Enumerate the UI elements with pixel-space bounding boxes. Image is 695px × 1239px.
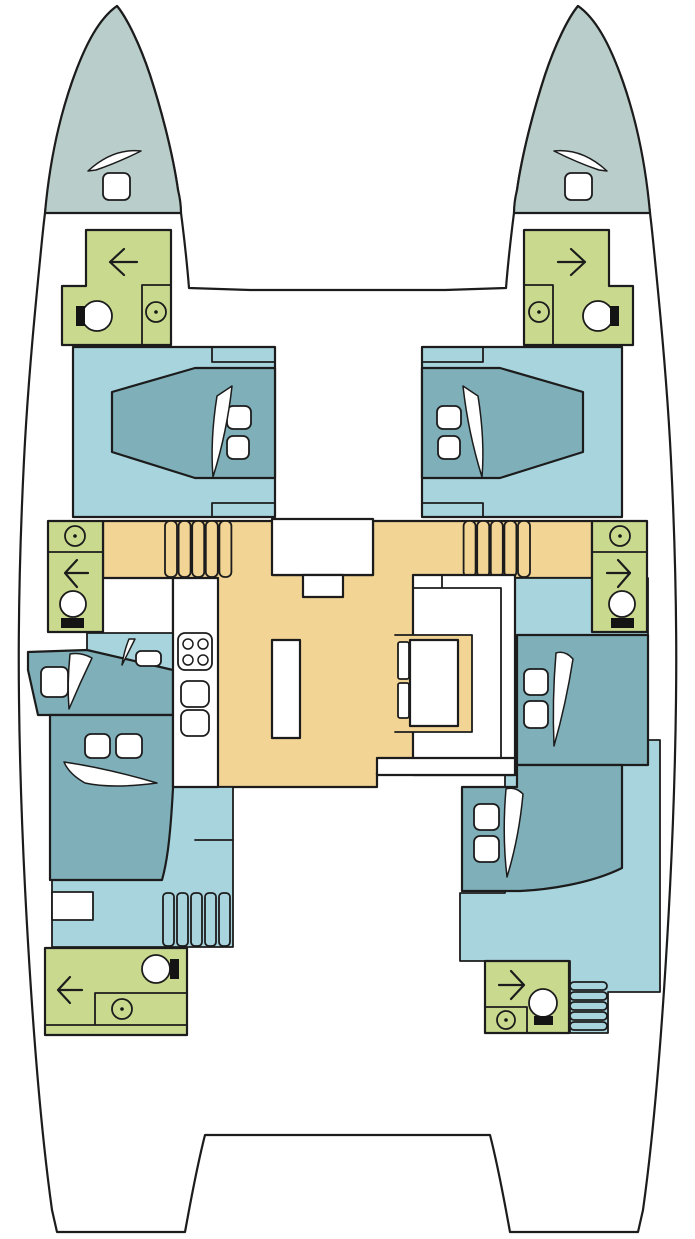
port-salon-stairs <box>165 521 231 577</box>
starboard-aft-sink-dot <box>504 1018 508 1022</box>
stair-rib <box>570 992 607 1000</box>
starboard-mid-pillow <box>524 669 548 695</box>
starboard-forward-sink-dot <box>537 310 541 314</box>
starboard-mid-toilet-tank <box>611 618 634 628</box>
port-forward-toilet-tank <box>76 306 85 326</box>
port-forward-pillow <box>227 406 251 429</box>
port-mid-toilet-icon <box>60 591 86 617</box>
port-aft-toilet-icon <box>142 955 170 983</box>
stair-rib <box>491 521 503 577</box>
starboard-bow-deck <box>514 6 650 213</box>
stair-rib <box>205 893 216 946</box>
stair-rib <box>504 521 516 577</box>
helm-seat <box>303 575 343 597</box>
port-forward-sink-dot <box>154 310 158 314</box>
starboard-mid-cabin <box>517 635 648 765</box>
stair-rib <box>219 521 231 577</box>
starboard-mid-toilet-icon <box>609 591 635 617</box>
port-aft-bathroom <box>45 948 187 1035</box>
stair-rib <box>206 521 218 577</box>
port-aft-pillow <box>116 734 142 758</box>
port-bow-deck <box>45 6 181 213</box>
galley-sink-icon <box>181 710 209 736</box>
stair-rib <box>179 521 191 577</box>
starboard-aft-pillow <box>474 804 499 830</box>
port-forward-pillow <box>227 436 249 459</box>
starboard-aft-toilet-icon <box>529 989 557 1017</box>
stove-icon <box>178 633 212 670</box>
port-forward-toilet-icon <box>82 301 112 331</box>
port-aft-cabin <box>50 715 173 880</box>
stair-rib <box>191 893 202 946</box>
galley <box>173 578 218 787</box>
floorplan-page <box>0 0 695 1239</box>
port-aft-sink-dot <box>120 1007 124 1011</box>
starboard-bow-hatch-icon <box>565 173 592 200</box>
catamaran-floorplan <box>0 0 695 1239</box>
starboard-mid-sink-dot <box>618 534 622 538</box>
starboard-forward-toilet-icon <box>583 301 613 331</box>
stair-rib <box>163 893 174 946</box>
port-mid-pillow <box>136 651 161 666</box>
port-aft-toilet-tank <box>170 959 179 979</box>
port-forward-cabin <box>73 347 275 517</box>
port-mid-toilet-tank <box>61 618 84 628</box>
settee-stool <box>398 642 409 679</box>
stair-rib <box>192 521 204 577</box>
port-bow-hatch-icon <box>103 173 130 200</box>
galley-sink-icon <box>181 681 209 707</box>
port-aft-bed <box>50 715 173 880</box>
port-hull-stairs <box>163 893 230 946</box>
port-mid-sink-dot <box>73 534 77 538</box>
stair-rib <box>518 521 530 577</box>
starboard-aft-toilet-tank <box>534 1016 553 1025</box>
stair-rib <box>464 521 476 577</box>
starboard-aft-pillow <box>474 836 499 862</box>
salon-island-counter <box>272 640 300 738</box>
settee-stool <box>398 683 409 718</box>
starboard-forward-cabin <box>422 347 622 517</box>
port-mid-bathroom <box>48 521 103 632</box>
starboard-aft-bathroom <box>485 961 569 1033</box>
stair-rib <box>165 521 177 577</box>
stair-rib <box>477 521 489 577</box>
settee-bench-aft <box>377 758 515 775</box>
starboard-mid-bathroom <box>592 521 647 632</box>
stair-rib <box>570 1022 607 1030</box>
port-mid-pillow <box>41 667 68 697</box>
starboard-mid-pillow <box>524 701 548 728</box>
stair-rib <box>570 1002 607 1010</box>
stair-rib <box>219 893 230 946</box>
port-hull-step-notch <box>52 892 93 920</box>
stair-rib <box>570 1012 607 1020</box>
stair-rib <box>570 982 607 990</box>
starboard-salon-stairs <box>464 521 530 577</box>
starboard-forward-toilet-tank <box>610 306 619 326</box>
starboard-forward-pillow <box>438 436 460 459</box>
companionway-door <box>272 519 373 575</box>
starboard-hull-stairs <box>570 982 607 1030</box>
port-aft-pillow <box>85 734 110 758</box>
starboard-forward-pillow <box>437 406 461 429</box>
stair-rib <box>177 893 188 946</box>
starboard-mid-berth <box>517 635 648 765</box>
salon-table <box>410 640 458 726</box>
